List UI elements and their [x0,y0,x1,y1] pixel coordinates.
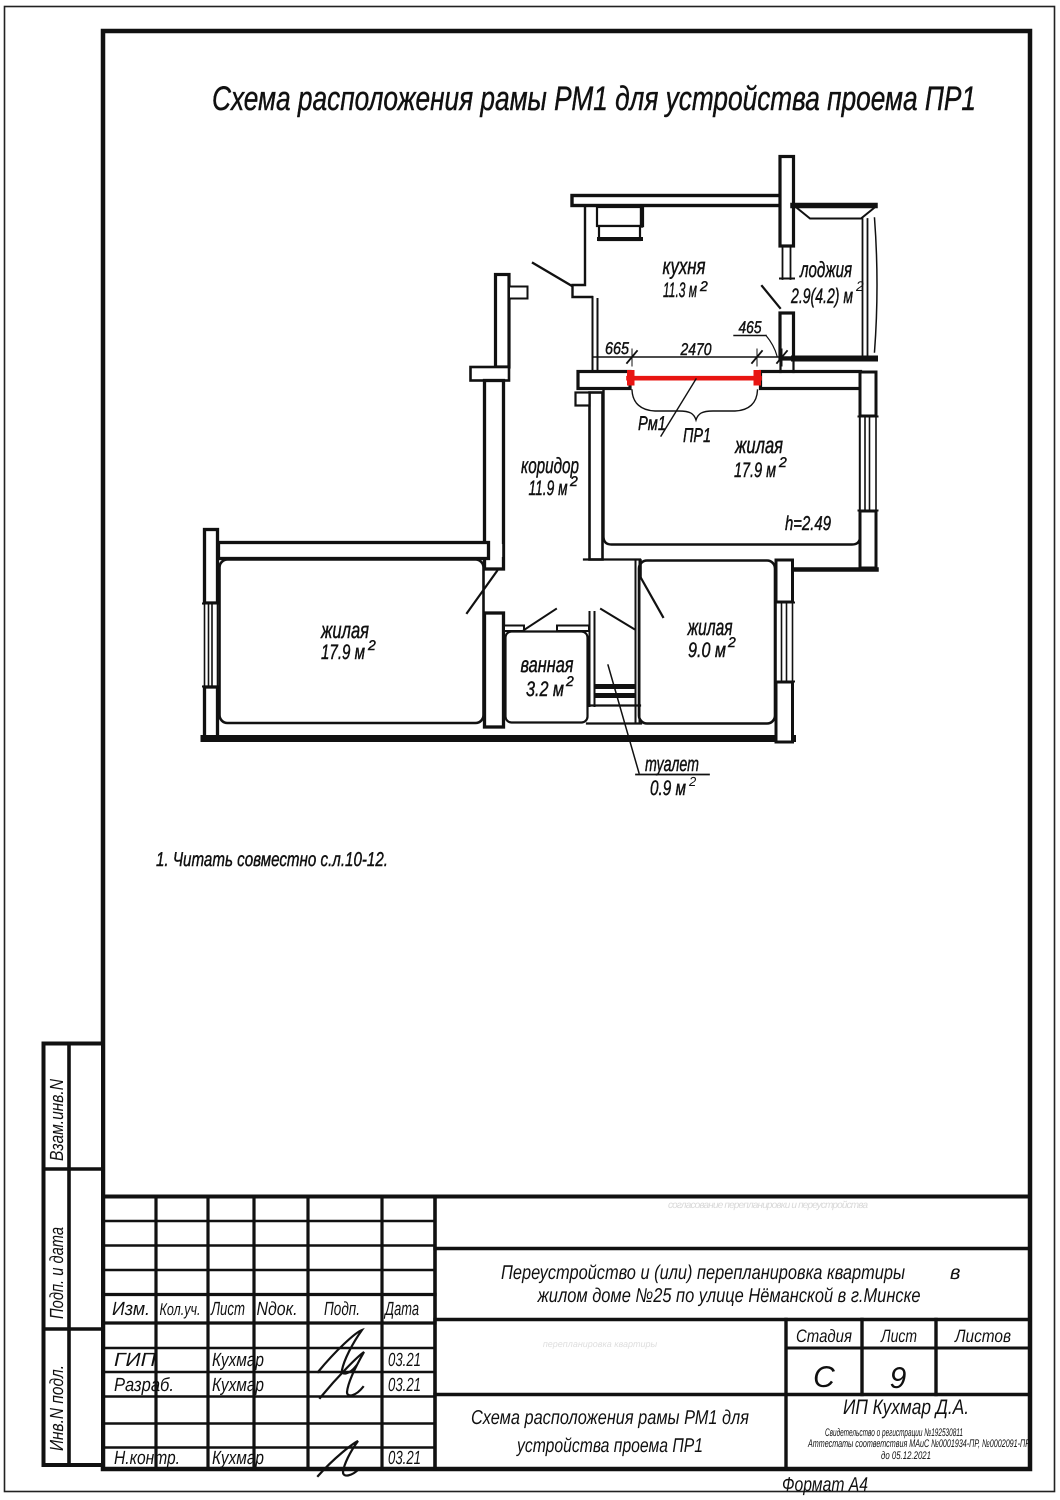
svg-text:Схема расположения рамы РМ1 дл: Схема расположения рамы РМ1 для устройст… [212,80,976,118]
svg-text:9.0 м: 9.0 м [688,639,726,662]
svg-text:h=2.49: h=2.49 [785,513,831,535]
svg-text:Формат А4: Формат А4 [782,1474,868,1496]
svg-text:2470: 2470 [680,340,712,359]
svg-text:2: 2 [565,673,574,689]
svg-text:Лист: Лист [880,1326,917,1346]
svg-text:ИП Кухмар Д.А.: ИП Кухмар Д.А. [843,1396,969,1419]
svg-text:2: 2 [367,637,376,653]
svg-text:11.3 м: 11.3 м [663,279,697,302]
svg-text:Подп.: Подп. [324,1299,360,1320]
svg-text:перепланировка квартиры: перепланировка квартиры [543,1339,658,1349]
svg-text:жилая: жилая [320,617,369,643]
svg-text:жилая: жилая [687,614,733,640]
svg-text:до 05.12.2021: до 05.12.2021 [881,1450,931,1462]
svg-text:лоджия: лоджия [799,257,853,282]
svg-text:жилом доме №25 по улице Нёманс: жилом доме №25 по улице Нёманской в г.Ми… [537,1285,921,1307]
svg-text:Nдок.: Nдок. [257,1299,298,1320]
svg-text:2: 2 [855,278,864,294]
svg-text:Лист: Лист [210,1299,245,1320]
svg-text:Схема расположения рамы РМ1 дл: Схема расположения рамы РМ1 для [471,1407,749,1429]
svg-text:2: 2 [778,454,787,470]
svg-text:1. Читать совместно с.л.10-12.: 1. Читать совместно с.л.10-12. [156,849,388,871]
svg-text:0.9 м: 0.9 м [650,777,686,800]
svg-text:Подп. и дата: Подп. и дата [47,1227,68,1319]
svg-text:03.21: 03.21 [388,1375,421,1396]
svg-text:Рм1: Рм1 [638,413,666,435]
svg-text:устройства проема ПР1: устройства проема ПР1 [515,1435,703,1457]
svg-text:Изм.: Изм. [112,1299,150,1320]
svg-text:туалет: туалет [645,753,699,776]
svg-text:3.2 м: 3.2 м [526,678,564,701]
svg-text:кухня: кухня [663,253,706,279]
svg-text:465: 465 [739,318,762,337]
svg-text:Кол.уч.: Кол.уч. [160,1300,201,1319]
svg-text:17.9 м: 17.9 м [734,459,776,482]
svg-text:Переустройство и (или) перепла: Переустройство и (или) перепланировка кв… [501,1262,905,1284]
svg-text:2: 2 [688,774,697,789]
svg-text:ГИП: ГИП [114,1350,156,1371]
svg-text:03.21: 03.21 [388,1448,421,1469]
svg-text:665: 665 [605,339,629,358]
svg-text:2: 2 [727,634,736,650]
svg-text:03.21: 03.21 [388,1350,421,1371]
svg-text:ПР1: ПР1 [683,425,711,447]
svg-text:9: 9 [890,1362,907,1395]
svg-text:в: в [950,1262,960,1284]
svg-text:Инв.N подл.: Инв.N подл. [47,1365,68,1451]
svg-text:С: С [813,1361,835,1394]
svg-text:Н.контр.: Н.контр. [114,1448,180,1469]
svg-text:Кухмар: Кухмар [212,1350,264,1371]
svg-text:жилая: жилая [734,432,783,458]
svg-text:Кухмар: Кухмар [212,1448,264,1469]
svg-text:11.9 м: 11.9 м [529,477,568,500]
svg-text:Разраб.: Разраб. [114,1375,174,1396]
svg-text:2.9(4.2) м: 2.9(4.2) м [790,285,853,308]
svg-text:Дата: Дата [384,1299,419,1320]
svg-text:17.9 м: 17.9 м [321,641,365,664]
svg-text:Аттестаты соответствия МАиС №0: Аттестаты соответствия МАиС №0001934-ПР,… [807,1438,1030,1450]
svg-text:Листов: Листов [954,1326,1011,1346]
svg-text:Кухмар: Кухмар [212,1375,264,1396]
svg-text:2: 2 [699,278,708,294]
svg-text:Стадия: Стадия [796,1326,852,1346]
svg-text:согласование перепланировки: согласование перепланировки и переустрой… [668,1200,868,1211]
svg-text:2: 2 [569,473,578,489]
svg-text:Взам.инв.N: Взам.инв.N [47,1079,68,1161]
